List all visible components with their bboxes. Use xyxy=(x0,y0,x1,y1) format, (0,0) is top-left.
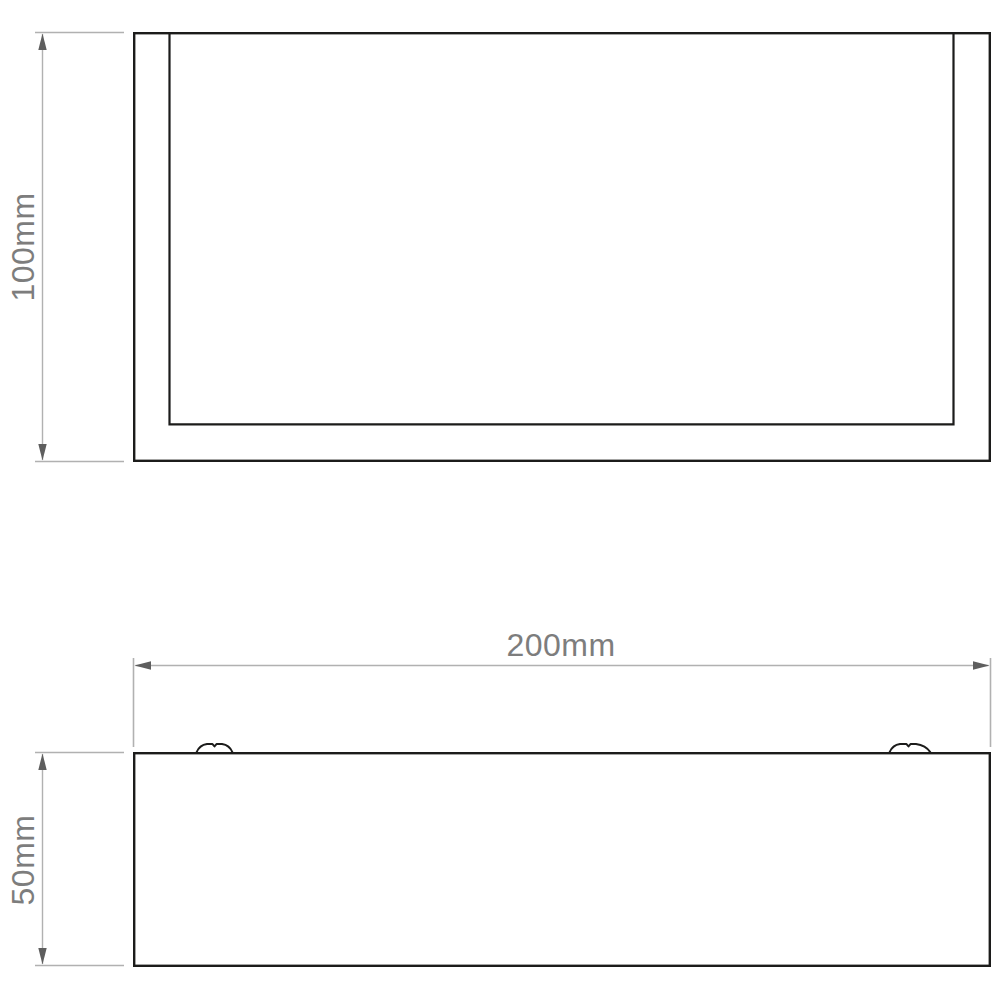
height-dimension-label: 100mm xyxy=(5,192,41,301)
depth-dimension-label: 50mm xyxy=(5,815,41,906)
arrow-right-icon xyxy=(973,661,990,669)
height-dimension-lines xyxy=(35,33,124,462)
side-view xyxy=(134,744,990,966)
arrow-down-icon xyxy=(38,948,46,965)
front-view xyxy=(134,33,990,461)
width-dimension-lines xyxy=(134,658,991,747)
arrow-down-icon xyxy=(38,444,46,461)
fixing-bump-left xyxy=(197,744,233,753)
drawing-canvas: 100mm 200mm xyxy=(0,0,1000,1000)
side-view-outline xyxy=(134,753,990,966)
height-dimension: 100mm xyxy=(5,33,124,462)
width-dimension-label: 200mm xyxy=(506,627,615,663)
technical-drawing: 100mm 200mm xyxy=(0,0,1000,1000)
front-view-outer-outline xyxy=(134,33,990,461)
depth-dimension: 50mm xyxy=(5,753,124,966)
width-dimension: 200mm xyxy=(134,627,991,747)
arrow-up-icon xyxy=(38,34,46,51)
fixing-bump-right xyxy=(890,744,931,753)
front-view-inner-inset-outline xyxy=(170,33,954,424)
arrow-up-icon xyxy=(38,754,46,771)
depth-dimension-lines xyxy=(35,753,124,966)
arrow-left-icon xyxy=(135,661,152,669)
